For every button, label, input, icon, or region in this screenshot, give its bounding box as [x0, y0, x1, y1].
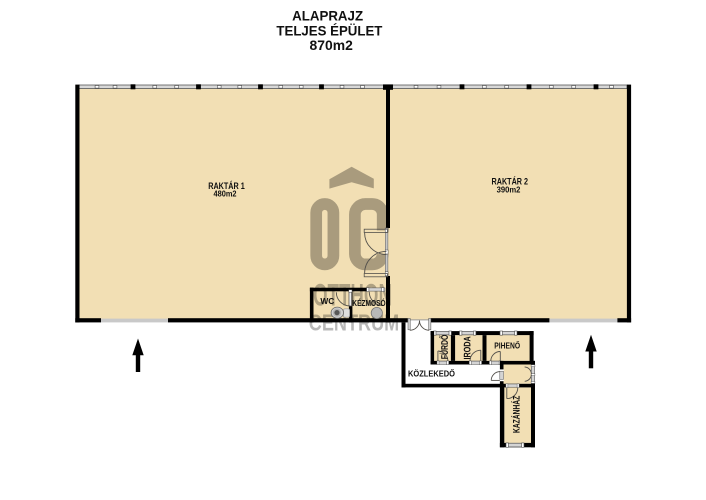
- svg-text:WC: WC: [320, 296, 334, 306]
- svg-text:KÉZMOSÓ: KÉZMOSÓ: [352, 299, 385, 308]
- svg-text:480m2: 480m2: [214, 190, 237, 199]
- svg-text:TELJES ÉPÜLET: TELJES ÉPÜLET: [276, 24, 383, 39]
- svg-text:ALAPRAJZ: ALAPRAJZ: [292, 8, 363, 23]
- svg-text:390m2: 390m2: [497, 185, 521, 194]
- svg-text:870m2: 870m2: [310, 38, 354, 53]
- svg-text:PIHENŐ: PIHENŐ: [494, 339, 520, 350]
- svg-text:KÖZLEKEDŐ: KÖZLEKEDŐ: [408, 367, 456, 378]
- svg-text:CENTRUM: CENTRUM: [309, 310, 400, 336]
